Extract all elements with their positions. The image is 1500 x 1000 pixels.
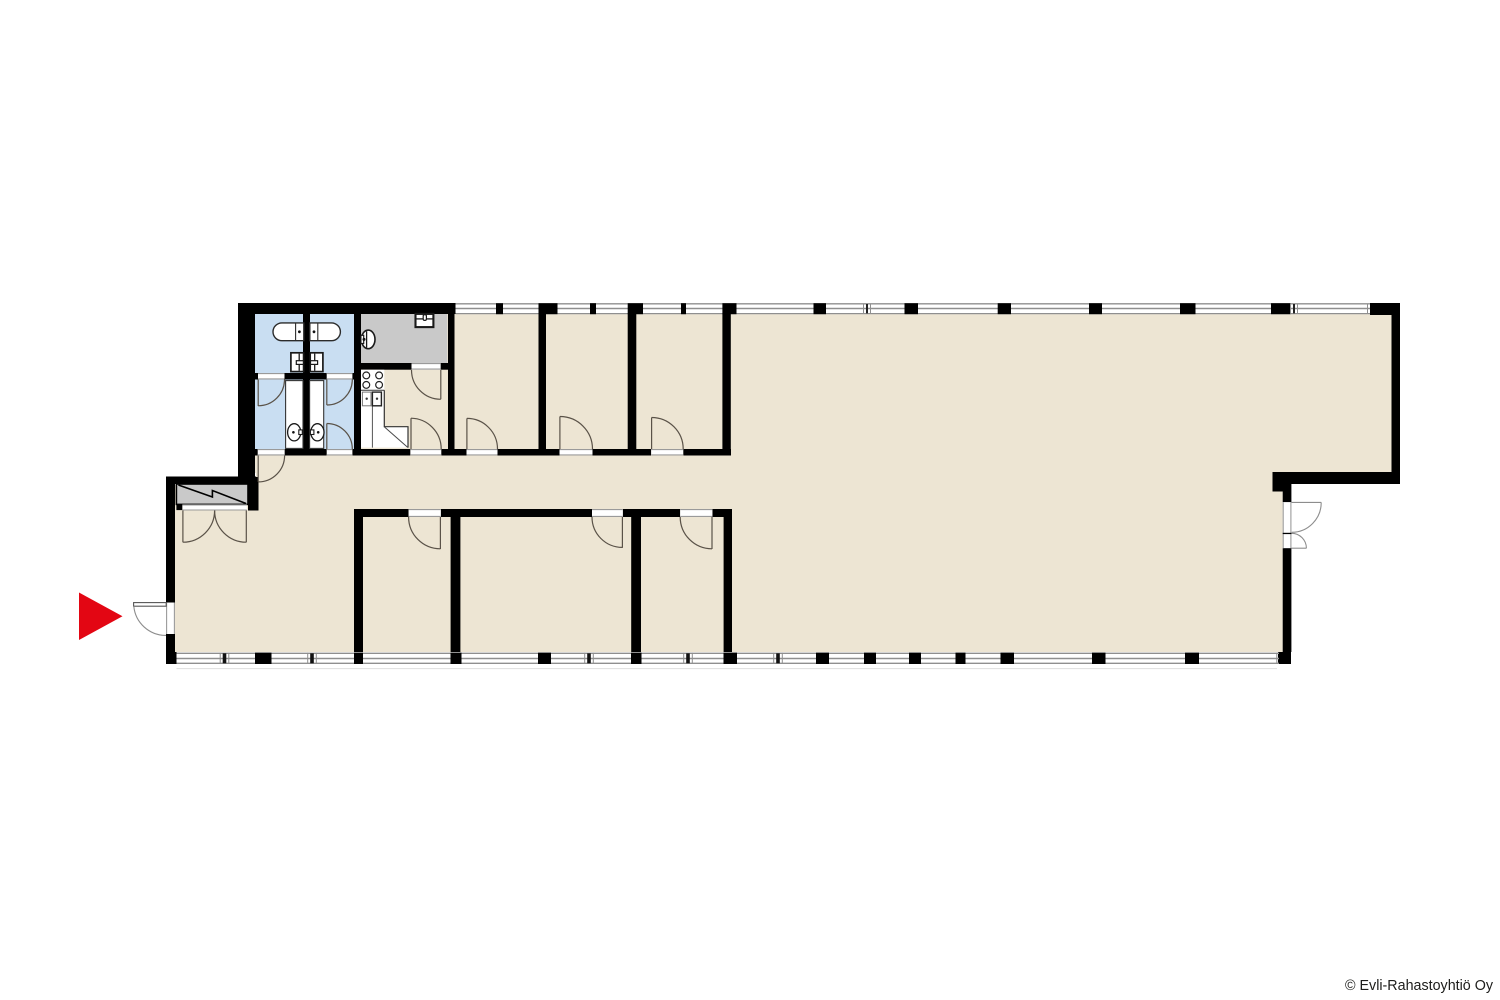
svg-text:© Evli-Rahastoyhtiö Oy: © Evli-Rahastoyhtiö Oy [1345, 978, 1494, 994]
